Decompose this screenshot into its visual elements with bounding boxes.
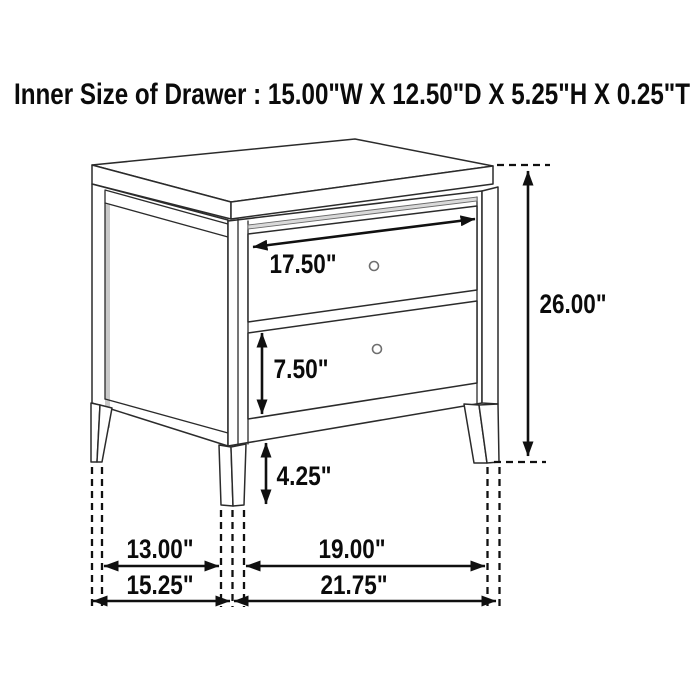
- label-width-inner: 19.00": [319, 534, 386, 564]
- nightstand-drawing: [91, 139, 499, 506]
- top-drawer-knob-icon: [370, 262, 379, 271]
- label-drawer-width: 17.50": [270, 249, 337, 279]
- front-left-leg: [219, 444, 246, 506]
- left-panel-shadow: [105, 204, 110, 428]
- right-corner-post: [482, 187, 498, 404]
- label-drawer-front-height: 7.50": [274, 354, 329, 384]
- back-left-leg: [91, 403, 112, 462]
- label-width-overall: 21.75": [321, 570, 388, 600]
- front-right-leg: [464, 404, 499, 463]
- label-leg-height: 4.25": [277, 461, 332, 491]
- label-depth-inner: 13.00": [127, 534, 194, 564]
- page-title: Inner Size of Drawer : 15.00"W X 12.50"D…: [14, 78, 690, 111]
- bottom-drawer-knob-icon: [373, 345, 382, 354]
- left-side-panel: [92, 184, 228, 446]
- nightstand-dimension-diagram: 17.50" 7.50" 4.25" 26.00" 13.00" 19.00" …: [0, 0, 700, 700]
- label-depth-overall: 15.25": [127, 570, 194, 600]
- diagram-canvas: 17.50" 7.50" 4.25" 26.00" 13.00" 19.00" …: [0, 0, 700, 700]
- label-overall-height: 26.00": [540, 289, 607, 319]
